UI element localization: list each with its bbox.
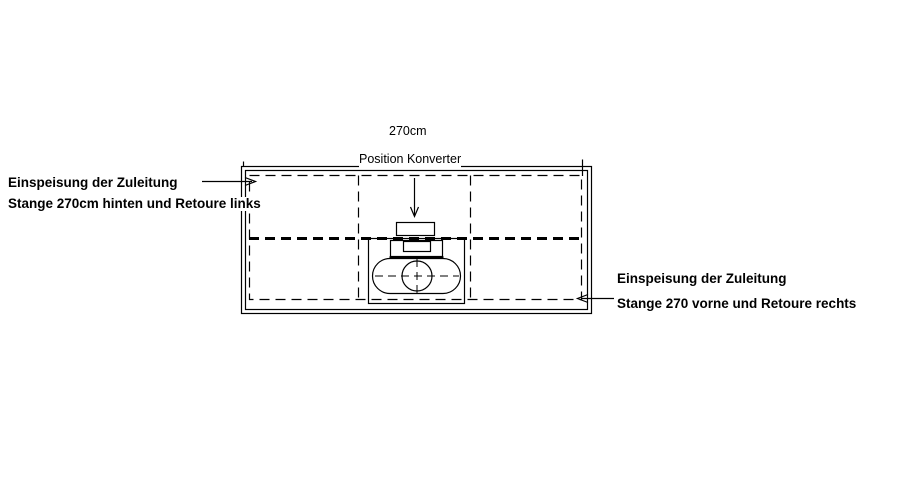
unit-bracket-rect bbox=[391, 241, 443, 257]
dimension-width-label: 270cm bbox=[389, 125, 427, 138]
leader-arrow-right-icon bbox=[578, 295, 615, 303]
leader-arrow-left-icon bbox=[202, 178, 256, 186]
arrow-down-icon bbox=[411, 178, 419, 217]
cabinet-plan-drawing: 270cm Position Konverter Einspeisung der… bbox=[0, 0, 901, 494]
drawing-canvas bbox=[0, 0, 901, 494]
right-annotation-line1: Einspeisung der Zuleitung bbox=[617, 272, 787, 286]
left-annotation-line1: Einspeisung der Zuleitung bbox=[8, 176, 178, 190]
converter-position-label: Position Konverter bbox=[359, 153, 461, 168]
left-annotation-line2: Stange 270cm hinten und Retoure links bbox=[8, 197, 261, 211]
converter-unit bbox=[369, 223, 465, 304]
converter-box-rect bbox=[397, 223, 435, 236]
right-annotation-line2: Stange 270 vorne und Retoure rechts bbox=[617, 297, 856, 311]
unit-bracket-inner-rect bbox=[404, 242, 431, 252]
